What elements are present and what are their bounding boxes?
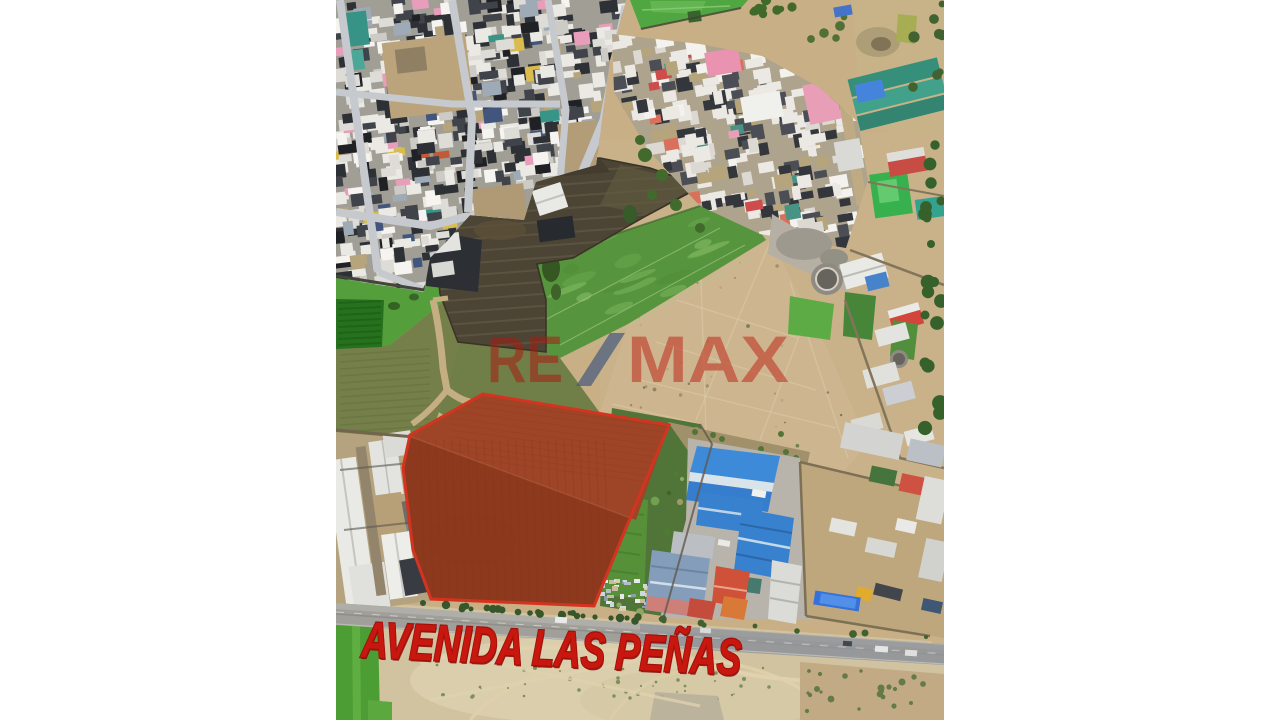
- svg-text:RE: RE: [487, 322, 563, 396]
- svg-text:MAX: MAX: [627, 322, 789, 396]
